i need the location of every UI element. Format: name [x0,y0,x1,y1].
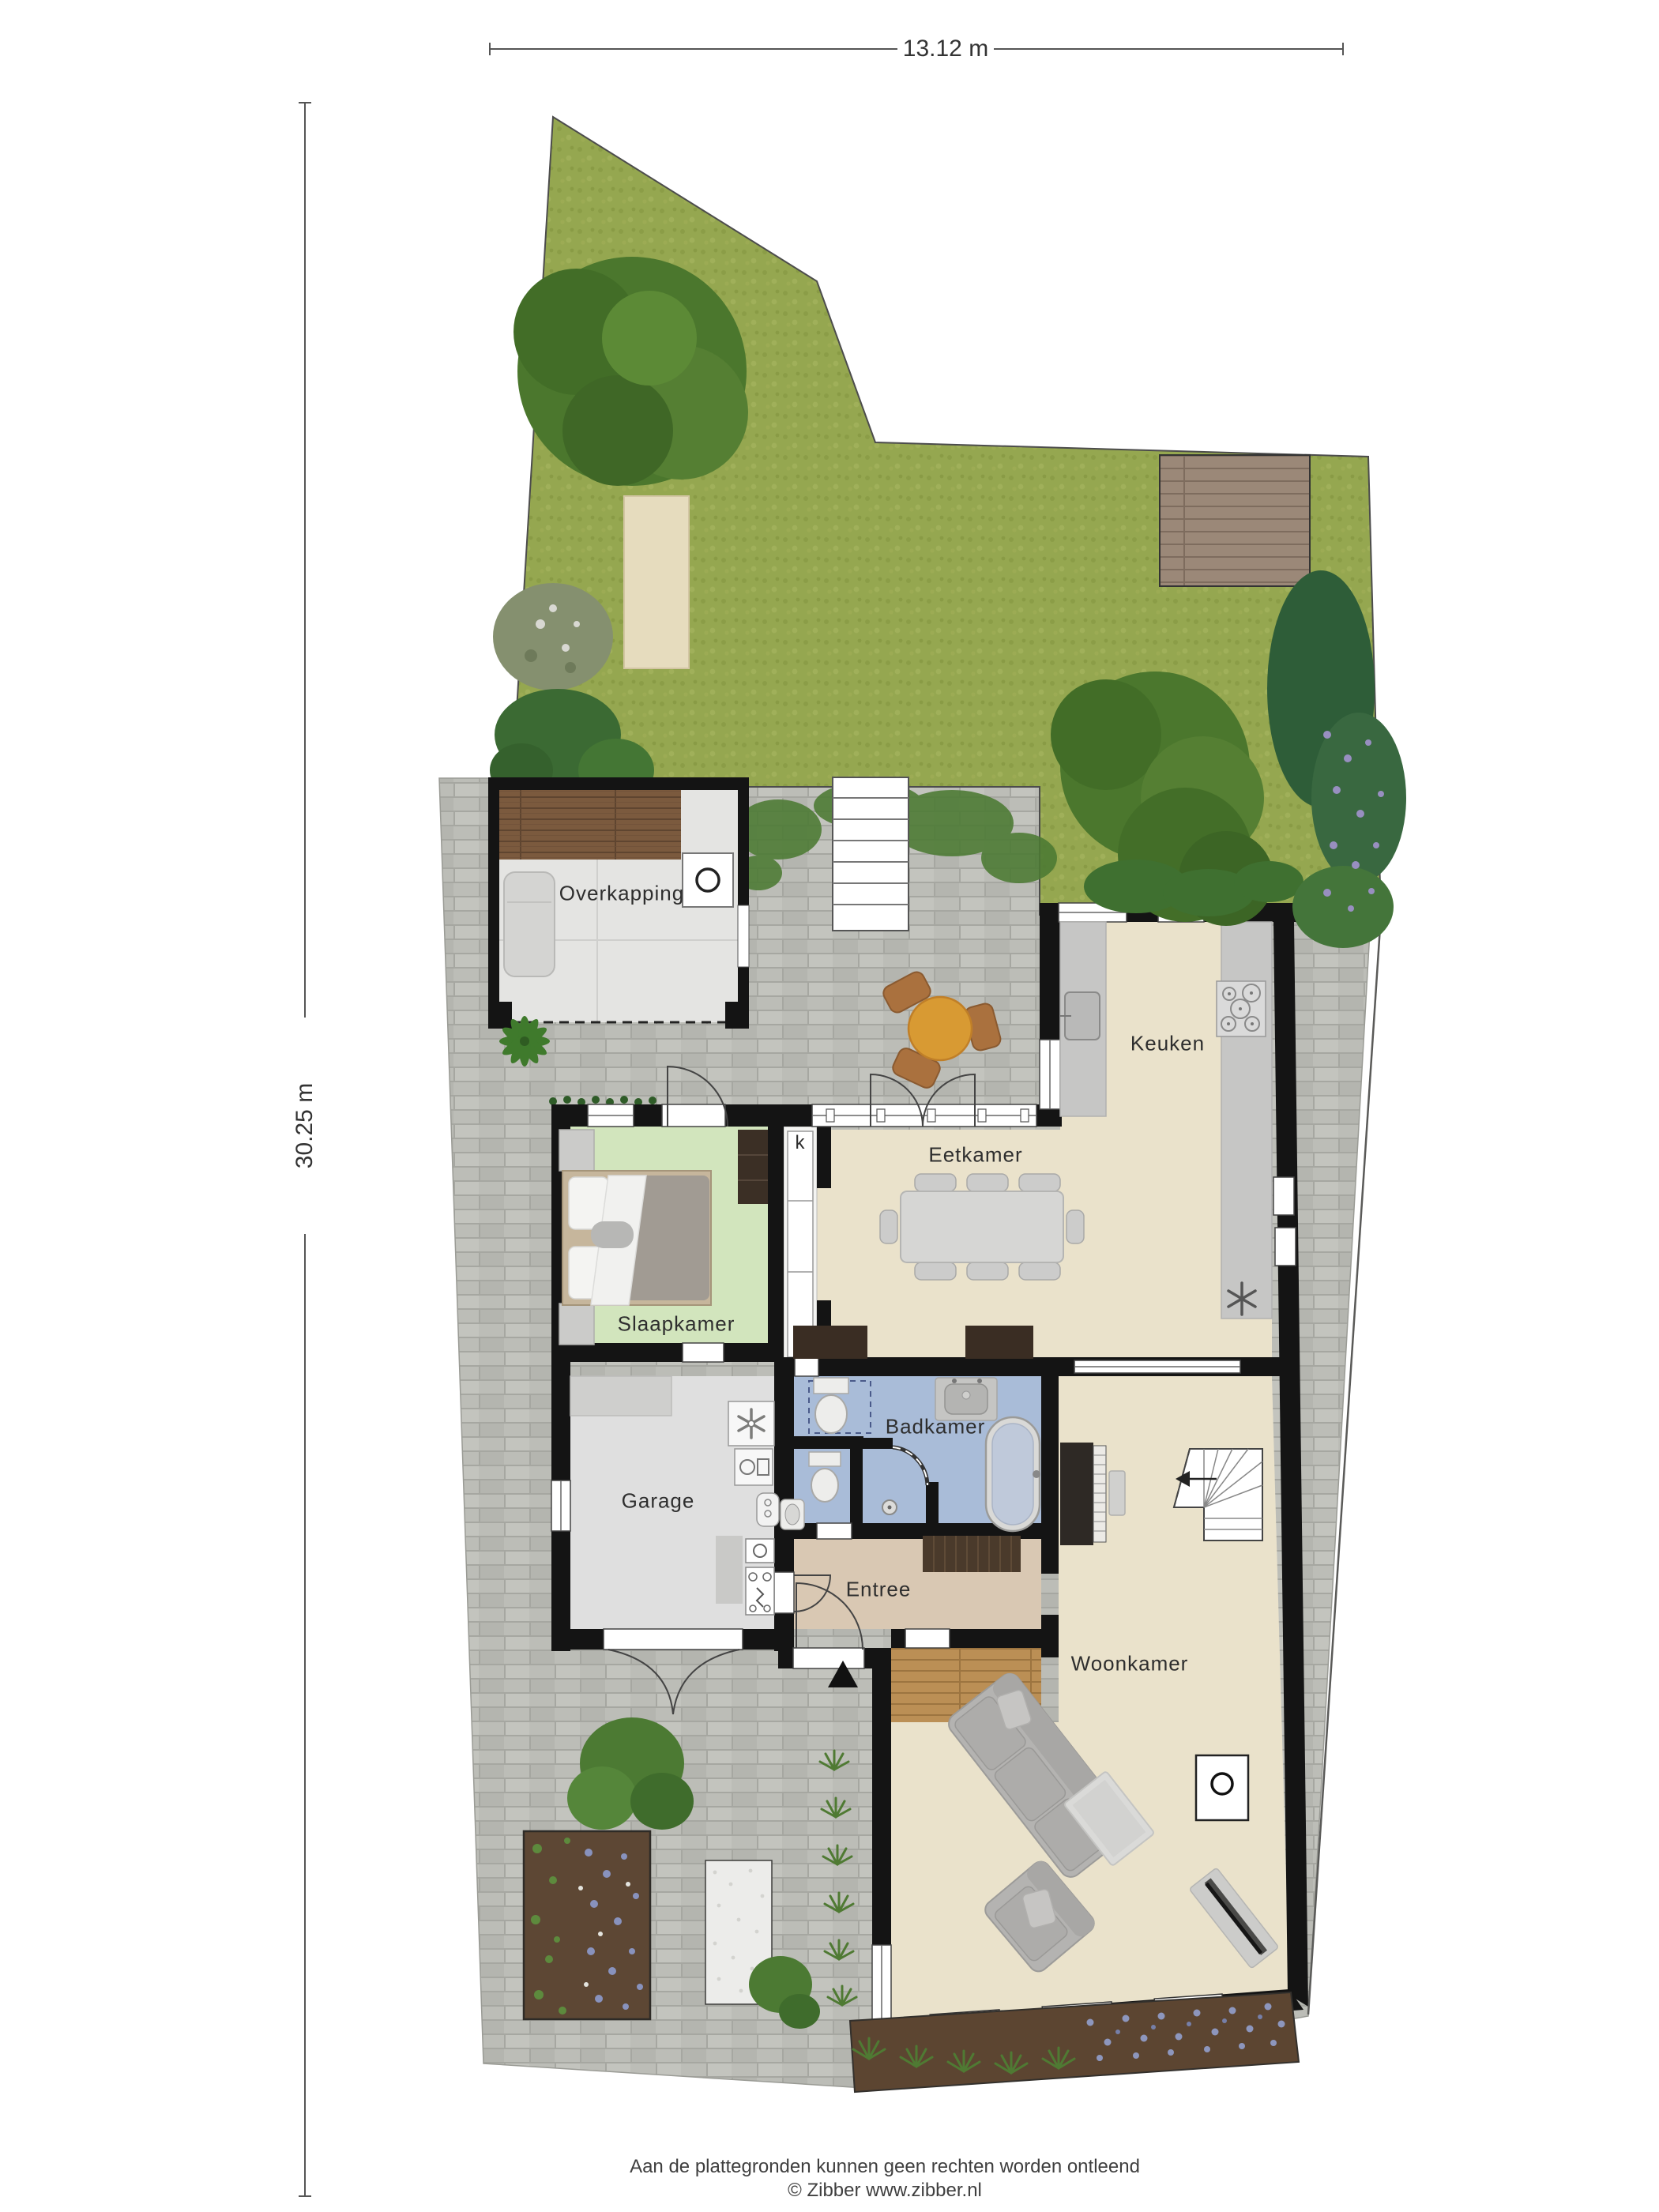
sideboard-right [965,1326,1033,1359]
stove-icon [1217,981,1266,1036]
room-label-woonkamer: Woonkamer [1071,1652,1189,1676]
washer-icon [735,1449,773,1485]
room-label-keuken: Keuken [1130,1032,1205,1056]
toilet-2 [809,1452,841,1502]
room-label-overkapping: Overkapping [559,882,684,906]
room-label-badkamer: Badkamer [886,1415,986,1439]
floor-plan-canvas: 13.12 m 30.25 m Overkapping Keuken Eetka… [0,0,1659,2212]
room-label-entree: Entree [846,1578,912,1602]
lounge-chair [504,872,555,976]
flower-bed [524,1831,650,2019]
fireplace [1196,1755,1248,1820]
footer: Aan de plattegronden kunnen geen rechten… [630,2155,1140,2203]
garden-table-area [624,496,689,668]
boiler-icon [757,1493,779,1526]
plan-graphics [0,0,1659,2212]
dimension-height-label: 30.25 m [292,1083,318,1168]
footer-copyright: © Zibber www.zibber.nl [630,2179,1140,2203]
room-label-garage: Garage [622,1489,695,1514]
sideboard-left [793,1326,867,1359]
room-label-eetkamer: Eetkamer [928,1143,1022,1168]
garden-flower-bush [493,583,613,690]
bbq-icon [683,853,733,907]
corner-sink [781,1499,804,1529]
room-label-slaapkamer: Slaapkamer [618,1312,735,1337]
ventilation-icon [728,1401,774,1446]
bathtub [986,1417,1040,1531]
footer-disclaimer: Aan de plattegronden kunnen geen rechten… [630,2155,1140,2179]
closet-label-k: k [796,1132,806,1154]
dimension-width-label: 13.12 m [903,36,988,62]
meter-cupboard-icons [746,1539,774,1615]
entree-bench [923,1536,1021,1572]
sink-icon [1060,992,1100,1040]
wardrobe [738,1130,768,1204]
garden-deck [1160,455,1310,586]
garden-steps [833,777,908,931]
